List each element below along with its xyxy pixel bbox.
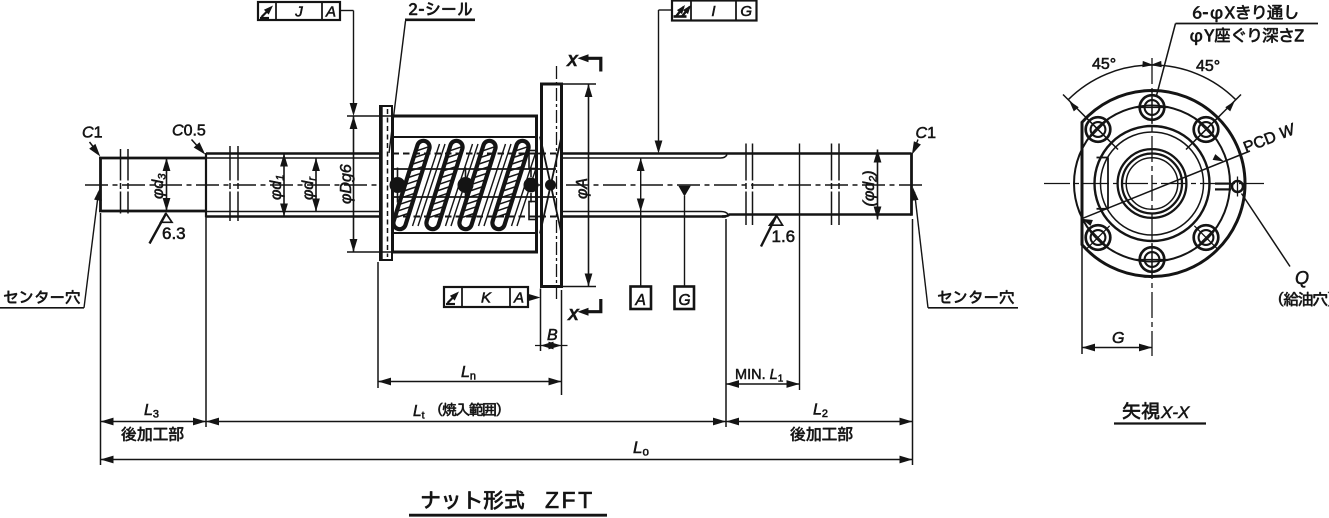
svg-text:Q: Q <box>1295 268 1309 288</box>
svg-text:C0.5: C0.5 <box>172 123 206 140</box>
svg-text:ZFT: ZFT <box>545 487 595 513</box>
svg-text:φA: φA <box>574 178 591 199</box>
svg-text:G: G <box>1112 330 1124 347</box>
svg-text:G: G <box>678 292 690 309</box>
svg-text:B: B <box>547 327 558 344</box>
svg-text:C1: C1 <box>916 125 937 142</box>
svg-text:45°: 45° <box>1196 58 1220 75</box>
svg-text:X-X: X-X <box>1160 403 1190 422</box>
svg-text:6.3: 6.3 <box>162 224 186 243</box>
svg-text:I: I <box>711 3 715 20</box>
svg-text:A: A <box>513 290 524 307</box>
svg-text:K: K <box>481 290 492 307</box>
svg-text:45°: 45° <box>1092 56 1116 73</box>
svg-text:X: X <box>567 307 580 324</box>
svg-text:G: G <box>740 3 752 20</box>
svg-text:A: A <box>325 4 336 21</box>
svg-text:1.6: 1.6 <box>772 227 796 246</box>
svg-text:MIN. L1: MIN. L1 <box>735 367 784 385</box>
svg-text:C1: C1 <box>82 125 103 142</box>
svg-text:(φd2): (φd2) <box>861 170 880 206</box>
svg-text:X: X <box>566 53 579 70</box>
svg-text:J: J <box>294 4 303 21</box>
svg-text:A: A <box>635 292 646 309</box>
svg-text:φDg6: φDg6 <box>338 164 355 204</box>
